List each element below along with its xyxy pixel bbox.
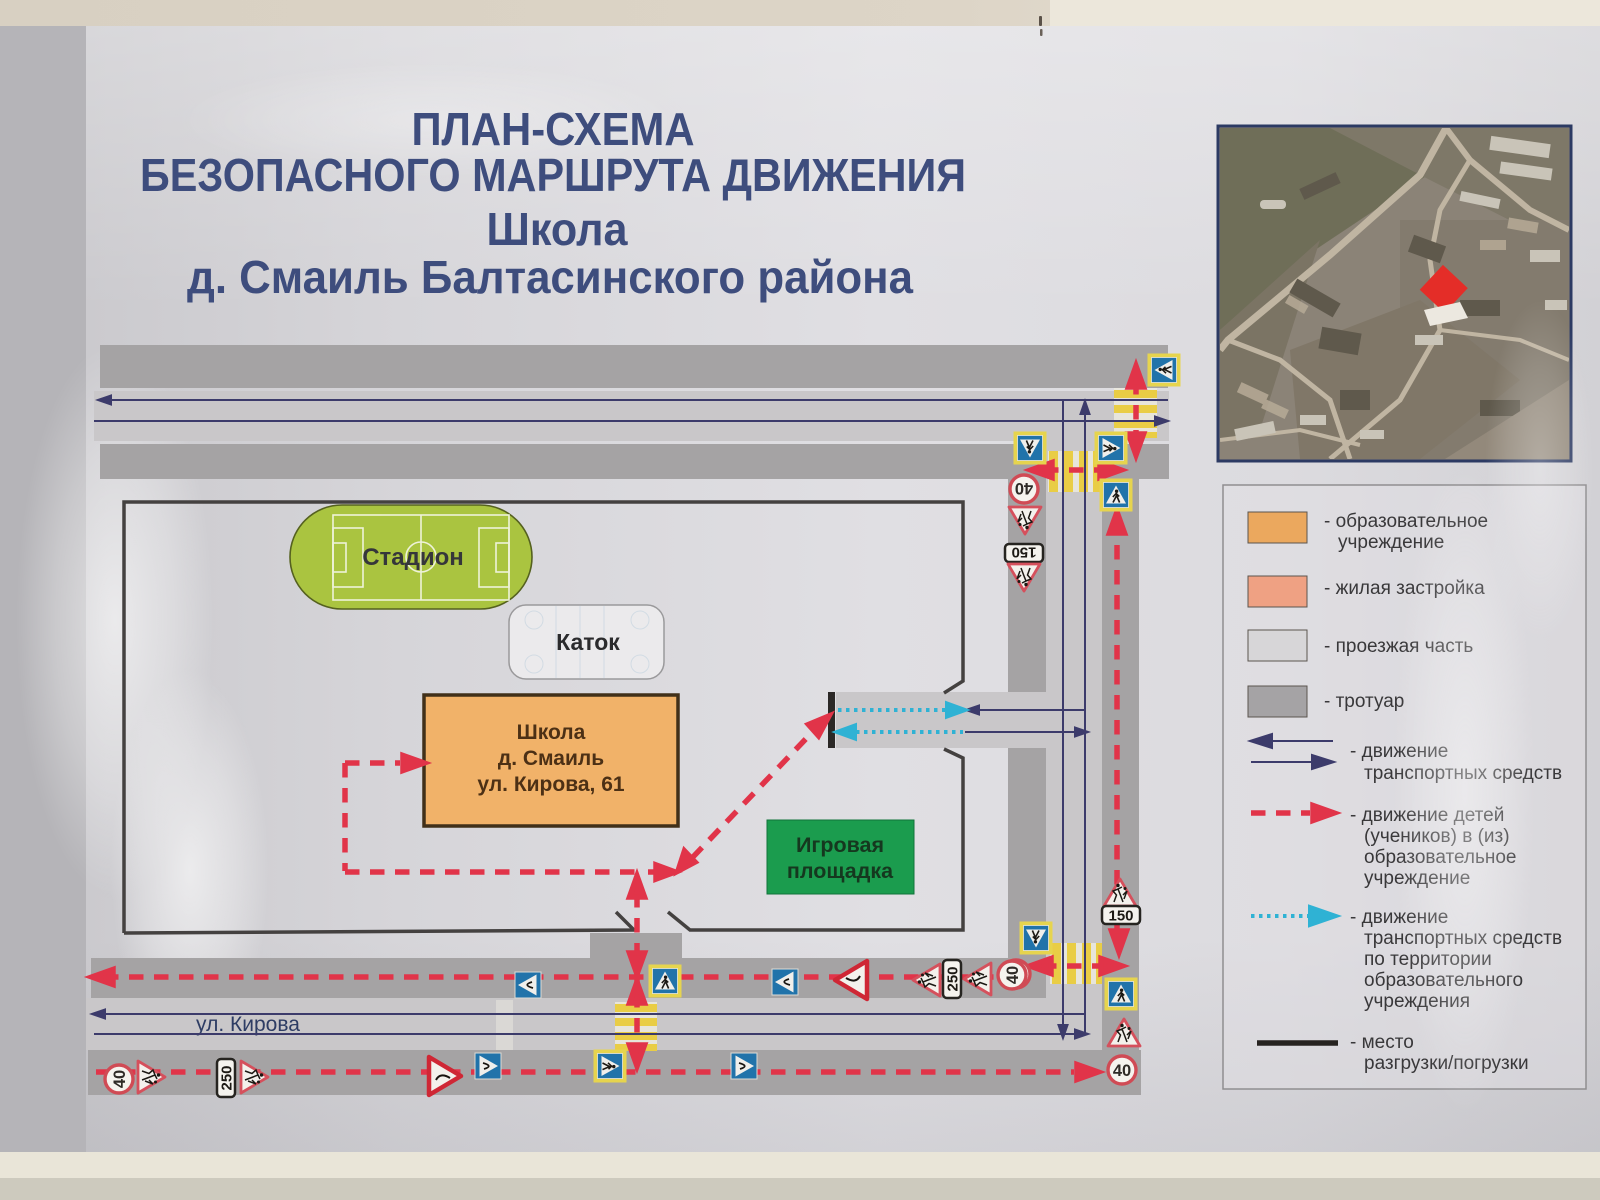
- svg-text:д. Смаиль: д. Смаиль: [498, 747, 604, 770]
- svg-text:- место: - место: [1350, 1032, 1414, 1053]
- svg-text:ПЛАН-СХЕМА: ПЛАН-СХЕМА: [412, 103, 695, 155]
- svg-text:Игровая: Игровая: [796, 833, 884, 857]
- svg-text:БЕЗОПАСНОГО МАРШРУТА ДВИЖЕНИЯ: БЕЗОПАСНОГО МАРШРУТА ДВИЖЕНИЯ: [140, 149, 966, 201]
- svg-text:- тротуар: - тротуар: [1324, 691, 1404, 712]
- svg-text:ул. Кирова: ул. Кирова: [196, 1013, 300, 1036]
- svg-text:ул. Кирова, 61: ул. Кирова, 61: [477, 773, 624, 796]
- svg-text:Стадион: Стадион: [362, 544, 464, 571]
- svg-text:площадка: площадка: [787, 859, 894, 883]
- svg-text:Школа: Школа: [487, 203, 628, 255]
- svg-text:Каток: Каток: [556, 629, 620, 655]
- svg-text:д. Смаиль Балтасинского района: д. Смаиль Балтасинского района: [187, 251, 913, 303]
- svg-text:Школа: Школа: [517, 721, 586, 744]
